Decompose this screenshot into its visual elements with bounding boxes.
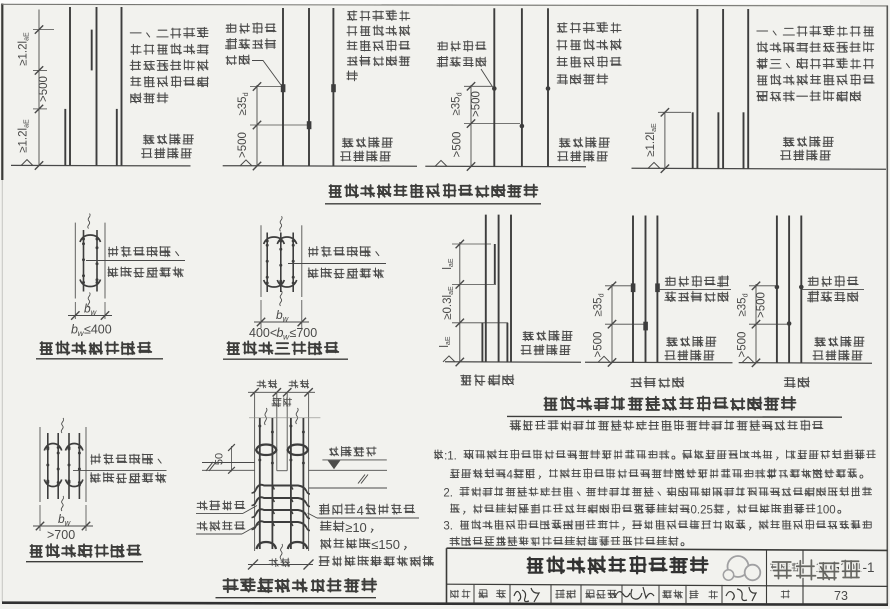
svg-text:>500: >500 (237, 132, 249, 158)
svg-text:>500: >500 (756, 292, 768, 318)
svg-text:>700: >700 (47, 528, 75, 542)
svg-text:≥10: ≥10 (345, 520, 367, 535)
svg-text:73: 73 (834, 589, 848, 603)
svg-text:>500: >500 (471, 91, 483, 117)
svg-text:100: 100 (817, 505, 836, 517)
svg-text:2.: 2. (443, 488, 453, 500)
svg-text:>500: >500 (737, 332, 749, 358)
svg-text:≤400: ≤400 (84, 323, 112, 337)
svg-text:≤700: ≤700 (290, 326, 318, 340)
svg-text:0.25: 0.25 (691, 505, 713, 517)
svg-text:>500: >500 (593, 332, 605, 358)
svg-text:50: 50 (214, 453, 226, 465)
svg-text::1.: :1. (444, 450, 457, 462)
svg-text:3.: 3. (443, 521, 453, 533)
svg-text:≤150: ≤150 (371, 537, 400, 552)
svg-text:>500: >500 (452, 132, 464, 158)
svg-text:4: 4 (357, 503, 364, 518)
svg-text:400<: 400< (249, 326, 277, 340)
svg-text:4: 4 (507, 469, 514, 481)
svg-text:>500: >500 (38, 76, 50, 102)
